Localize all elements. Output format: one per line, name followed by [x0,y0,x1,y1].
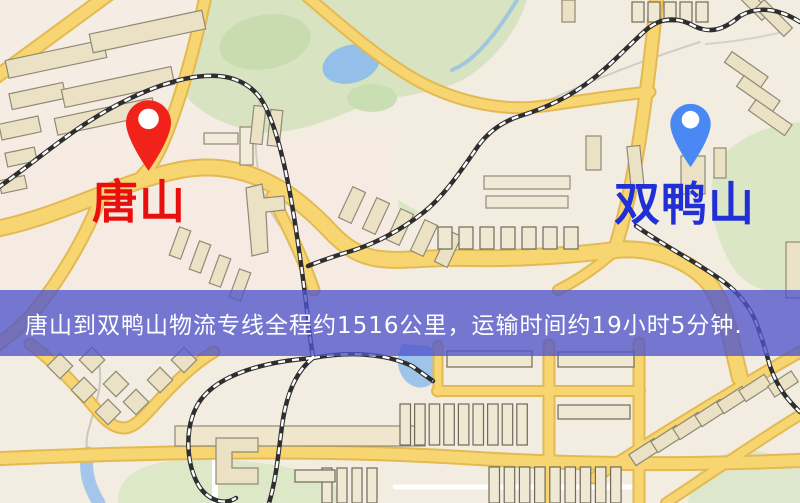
blue-map-pin-icon [668,103,713,168]
red-map-pin-icon [125,99,172,172]
route-info-text: 唐山到双鸭山物流专线全程约1516公里，运输时间约19小时5分钟. [25,306,743,340]
origin-marker[interactable] [125,99,172,172]
blue-map-pin-hole [682,111,700,129]
destination-city-label: 双鸭山 [614,181,755,227]
red-map-pin-hole [138,109,159,130]
map-view[interactable]: 唐山 双鸭山 唐山到双鸭山物流专线全程约1516公里，运输时间约19小时5分钟. [0,0,800,503]
route-info-banner: 唐山到双鸭山物流专线全程约1516公里，运输时间约19小时5分钟. [0,290,800,356]
origin-city-label: 唐山 [92,179,186,225]
destination-marker[interactable] [668,103,713,168]
map-canvas [0,0,800,503]
